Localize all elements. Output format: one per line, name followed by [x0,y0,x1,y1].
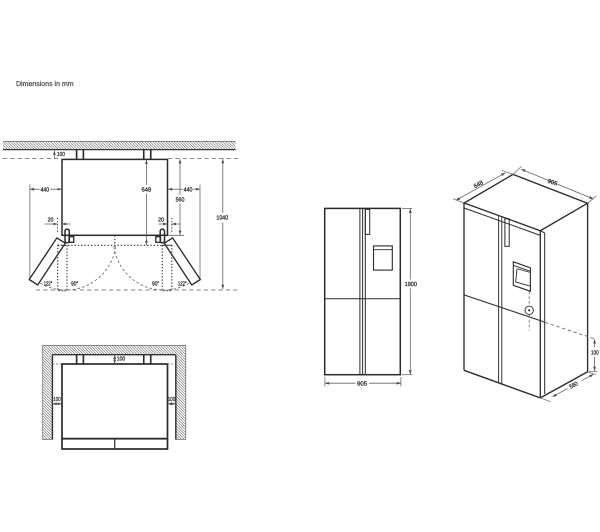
svg-text:440: 440 [184,186,193,193]
svg-text:1040: 1040 [216,215,228,222]
svg-text:440: 440 [41,186,50,193]
svg-text:560: 560 [176,196,185,203]
svg-text:100: 100 [53,396,60,403]
svg-text:100: 100 [57,151,65,158]
svg-text:1900: 1900 [405,281,418,288]
svg-text:122°: 122° [44,281,53,288]
svg-text:20: 20 [158,217,164,224]
svg-text:648: 648 [142,186,152,193]
svg-text:100: 100 [591,349,599,356]
svg-text:122°: 122° [178,281,187,288]
svg-text:20: 20 [48,217,54,224]
svg-text:905: 905 [357,380,368,387]
svg-text:90°: 90° [152,281,160,288]
svg-text:100: 100 [168,396,175,403]
svg-text:Dimensions in mm: Dimensions in mm [16,80,74,88]
svg-text:100: 100 [117,356,125,363]
svg-text:90°: 90° [71,281,79,288]
